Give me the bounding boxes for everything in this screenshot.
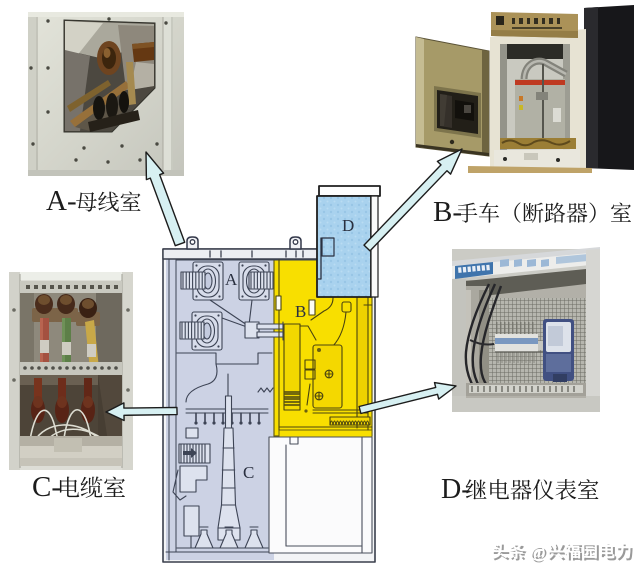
svg-text:B: B (295, 302, 306, 321)
svg-text:C-: C- (32, 471, 61, 503)
svg-text:D-: D- (441, 474, 471, 505)
svg-text:A-: A- (46, 185, 77, 217)
svg-text:D: D (342, 216, 354, 235)
svg-text:B-: B- (433, 196, 462, 228)
svg-text:A: A (225, 270, 238, 289)
svg-text:C: C (243, 463, 254, 482)
svg-text:@: @ (530, 542, 546, 561)
